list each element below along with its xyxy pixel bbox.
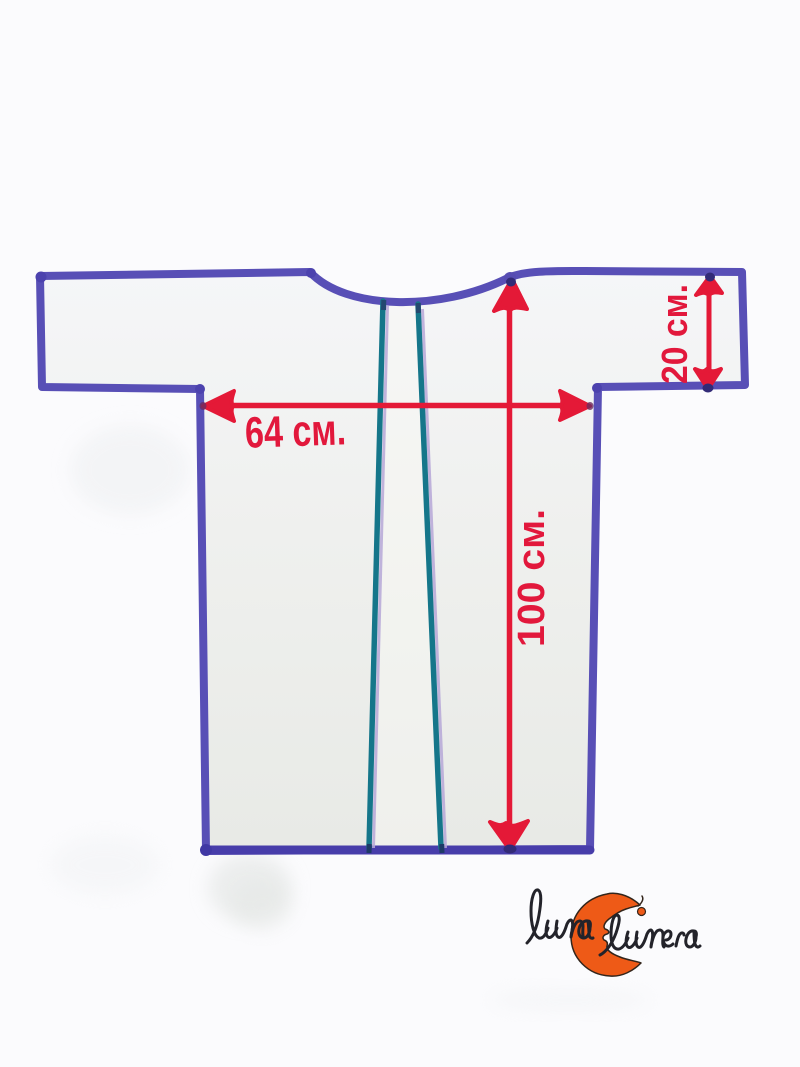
svg-text:100 см.: 100 см. [511, 509, 553, 647]
svg-text:20 см.: 20 см. [654, 284, 695, 384]
svg-text:64 см.: 64 см. [244, 405, 347, 457]
